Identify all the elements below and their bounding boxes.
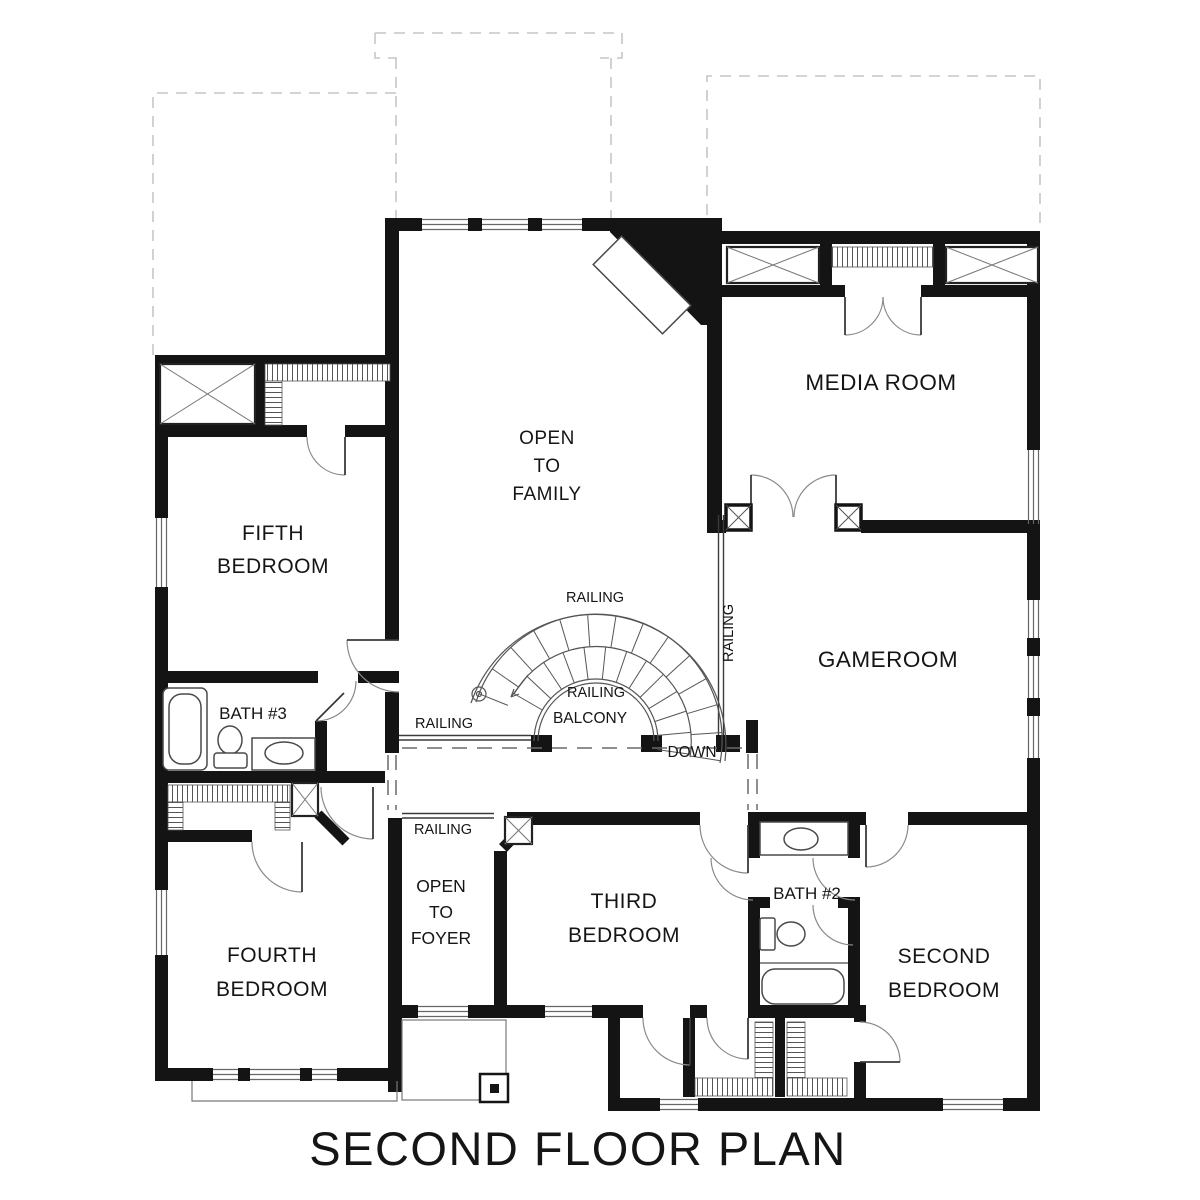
railing-label-stair-inner: RAILING xyxy=(567,685,625,701)
third-bedroom-label-1: THIRD xyxy=(591,890,658,913)
railing-label-balcony-left: RAILING xyxy=(415,716,473,732)
roof-outline xyxy=(153,33,1040,355)
railing-label-gameroom-vertical: RAILING xyxy=(721,604,737,662)
open-to-family-label-3: FAMILY xyxy=(512,484,581,505)
fourth-bedroom-label-2: BEDROOM xyxy=(216,978,328,1001)
third-bedroom-label-2: BEDROOM xyxy=(568,924,680,947)
fifth-bedroom-label-1: FIFTH xyxy=(242,522,304,545)
fifth-bedroom-label-2: BEDROOM xyxy=(217,555,329,578)
railing-label-stair-outer: RAILING xyxy=(566,590,624,606)
railings xyxy=(399,515,724,818)
railing-label-foyer: RAILING xyxy=(414,822,472,838)
bath3-toilet xyxy=(218,726,242,754)
doors xyxy=(252,297,921,1065)
open-to-foyer-label-1: OPEN xyxy=(416,876,466,896)
balcony-label: BALCONY xyxy=(553,710,627,727)
down-label: DOWN xyxy=(667,744,716,761)
bath2-tub xyxy=(762,969,844,1004)
bath3-label: BATH #3 xyxy=(219,704,287,723)
second-bedroom-label-2: BEDROOM xyxy=(888,979,1000,1002)
open-to-foyer-label-3: FOYER xyxy=(411,928,471,948)
floor-plan-canvas: FIFTH BEDROOM OPEN TO FAMILY MEDIA ROOM … xyxy=(0,0,1200,1200)
plan-title: SECOND FLOOR PLAN xyxy=(309,1122,846,1175)
gameroom-label: GAMEROOM xyxy=(818,647,958,672)
open-to-family-label-2: TO xyxy=(533,456,560,477)
column-posts xyxy=(726,505,861,530)
media-room-label: MEDIA ROOM xyxy=(805,370,956,395)
porches xyxy=(192,1020,508,1102)
open-to-family-label-1: OPEN xyxy=(519,428,575,449)
floor-plan: FIFTH BEDROOM OPEN TO FAMILY MEDIA ROOM … xyxy=(0,0,1200,1200)
bath2-label: BATH #2 xyxy=(773,884,841,903)
open-to-foyer-label-2: TO xyxy=(429,902,453,922)
bath2-toilet xyxy=(760,918,775,950)
second-bedroom-label-1: SECOND xyxy=(898,945,991,968)
fourth-bedroom-label-1: FOURTH xyxy=(227,944,317,967)
